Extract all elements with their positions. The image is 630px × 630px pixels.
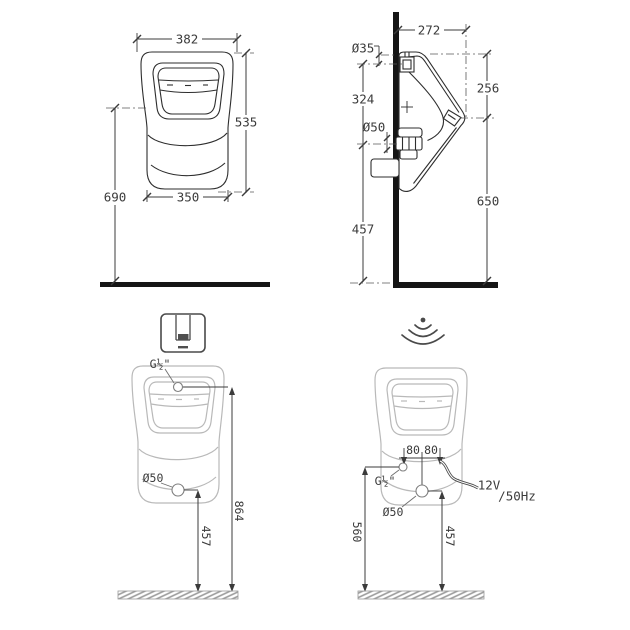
- dim-457-side-label: 457: [352, 222, 375, 237]
- floor-line: [393, 282, 498, 288]
- frequency-label: /50Hz: [498, 489, 536, 504]
- o50-label: Ø50: [383, 505, 404, 519]
- waste-pipe: [371, 159, 399, 177]
- dim-535-label: 535: [235, 115, 258, 130]
- dim-560-label: 560: [350, 522, 364, 543]
- dim-height-650: 650: [474, 118, 502, 285]
- infrared-sensor-icon: [402, 318, 444, 344]
- dim-o50-side-label: Ø50: [363, 120, 386, 135]
- side-view: 272 Ø35 324 256 Ø50: [349, 12, 502, 288]
- floor-hatch: [118, 591, 238, 599]
- dim-350-label: 350: [177, 190, 200, 205]
- dim-80-left-label: 80: [406, 443, 420, 457]
- g12-label: G½": [375, 474, 396, 488]
- dim-650-label: 650: [477, 194, 500, 209]
- dim-272-label: 272: [418, 23, 441, 38]
- dim-457-sensor-label: 457: [443, 526, 457, 547]
- dim-256-label: 256: [477, 81, 500, 96]
- dim-height-690: 690: [101, 104, 146, 285]
- front-view: 382 535 690 350: [100, 32, 270, 288]
- inlet-connection: [399, 463, 407, 471]
- dim-457-manual-label: 457: [199, 526, 213, 547]
- dim-382-label: 382: [176, 32, 199, 47]
- g12-label: G½": [150, 357, 171, 371]
- dim-height-324: 324: [349, 60, 377, 149]
- dim-height-457-sensor: 457: [428, 491, 457, 592]
- dim-324-label: 324: [352, 92, 375, 107]
- inlet-connection: [174, 383, 183, 392]
- dim-80-right-label: 80: [424, 443, 438, 457]
- dim-width-382: 382: [133, 32, 241, 53]
- technical-drawing-sheet: 382 535 690 350: [0, 0, 630, 630]
- floor-hatch: [358, 591, 484, 599]
- manual-flush-variant: G½" Ø50 864 457: [118, 314, 246, 599]
- drawing-canvas: 382 535 690 350: [0, 0, 630, 630]
- dim-864-label: 864: [232, 501, 246, 522]
- flush-button-icon: [161, 314, 205, 352]
- outlet-connection: [416, 485, 428, 497]
- sensor-flush-variant: 80 80 G½" Ø50 12V /50Hz 560: [350, 318, 536, 599]
- urinal-front-outline: [141, 52, 233, 189]
- dim-690-label: 690: [104, 190, 127, 205]
- o50-label: Ø50: [143, 471, 164, 485]
- outlet-connection: [172, 484, 184, 496]
- dim-o35-label: Ø35: [352, 41, 375, 56]
- outlet-coupling: [398, 128, 422, 137]
- floor-line: [100, 282, 270, 287]
- dim-height-457-manual: 457: [184, 490, 213, 592]
